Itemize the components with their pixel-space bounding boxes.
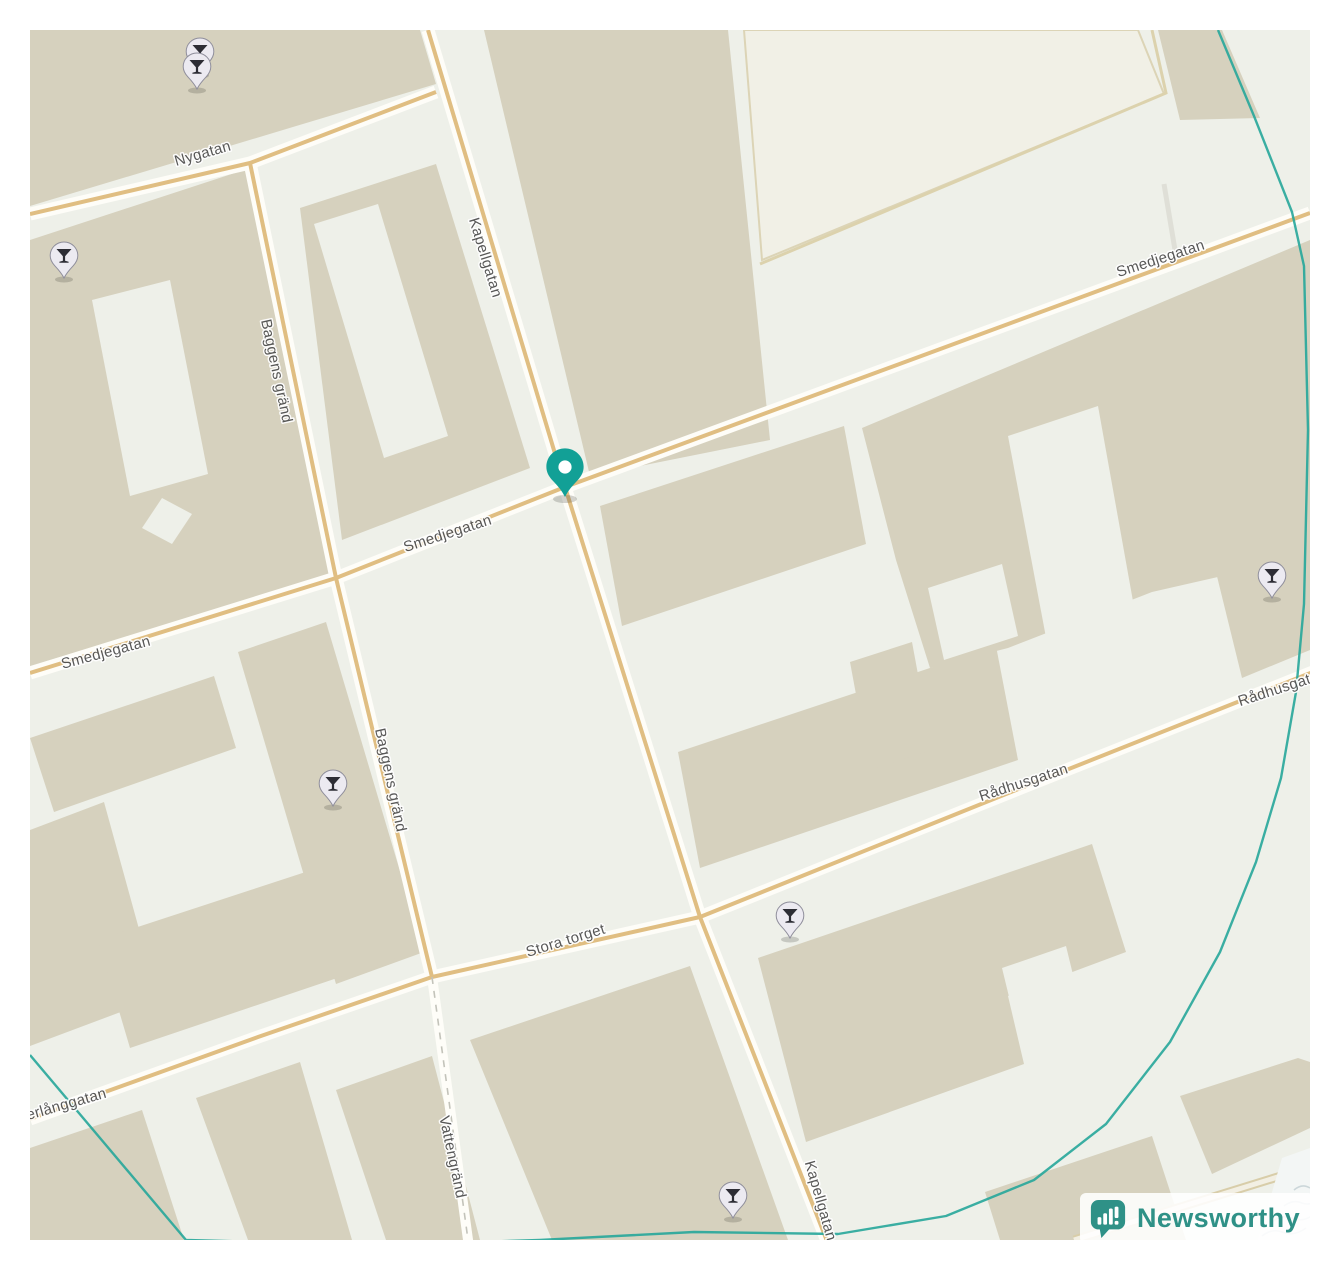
map-canvas: NygatanKapellgatanSmedjegatanSmedjegatan…: [0, 0, 1340, 1269]
newsworthy-logo: Newsworthy: [1080, 1193, 1314, 1244]
newsworthy-bars-icon: [1089, 1198, 1127, 1239]
logo-text: Newsworthy: [1137, 1203, 1300, 1234]
map[interactable]: NygatanKapellgatanSmedjegatanSmedjegatan…: [30, 30, 1310, 1240]
